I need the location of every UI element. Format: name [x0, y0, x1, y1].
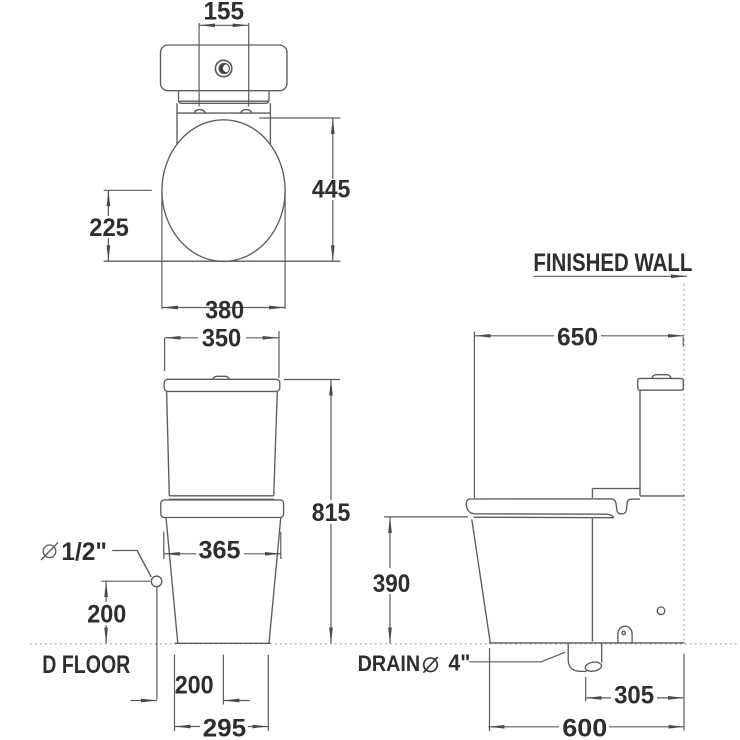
svg-text:600: 600 [562, 715, 607, 740]
svg-text:200: 200 [87, 601, 126, 629]
svg-text:155: 155 [204, 0, 245, 26]
svg-text:FINISHED WALL: FINISHED WALL [533, 249, 692, 277]
svg-text:365: 365 [199, 537, 241, 565]
svg-text:1/2": 1/2" [61, 538, 107, 566]
svg-text:815: 815 [312, 499, 351, 527]
svg-text:380: 380 [205, 297, 244, 325]
svg-text:305: 305 [614, 682, 654, 710]
svg-text:650: 650 [557, 324, 598, 352]
svg-text:295: 295 [203, 715, 247, 740]
svg-text:350: 350 [202, 325, 242, 353]
svg-text:445: 445 [312, 176, 351, 204]
svg-text:200: 200 [175, 672, 214, 700]
svg-text:4": 4" [448, 650, 470, 676]
svg-text:225: 225 [89, 214, 129, 242]
svg-text:D FLOOR: D FLOOR [42, 651, 130, 679]
svg-text:DRAIN: DRAIN [358, 651, 421, 676]
svg-text:390: 390 [373, 570, 411, 598]
